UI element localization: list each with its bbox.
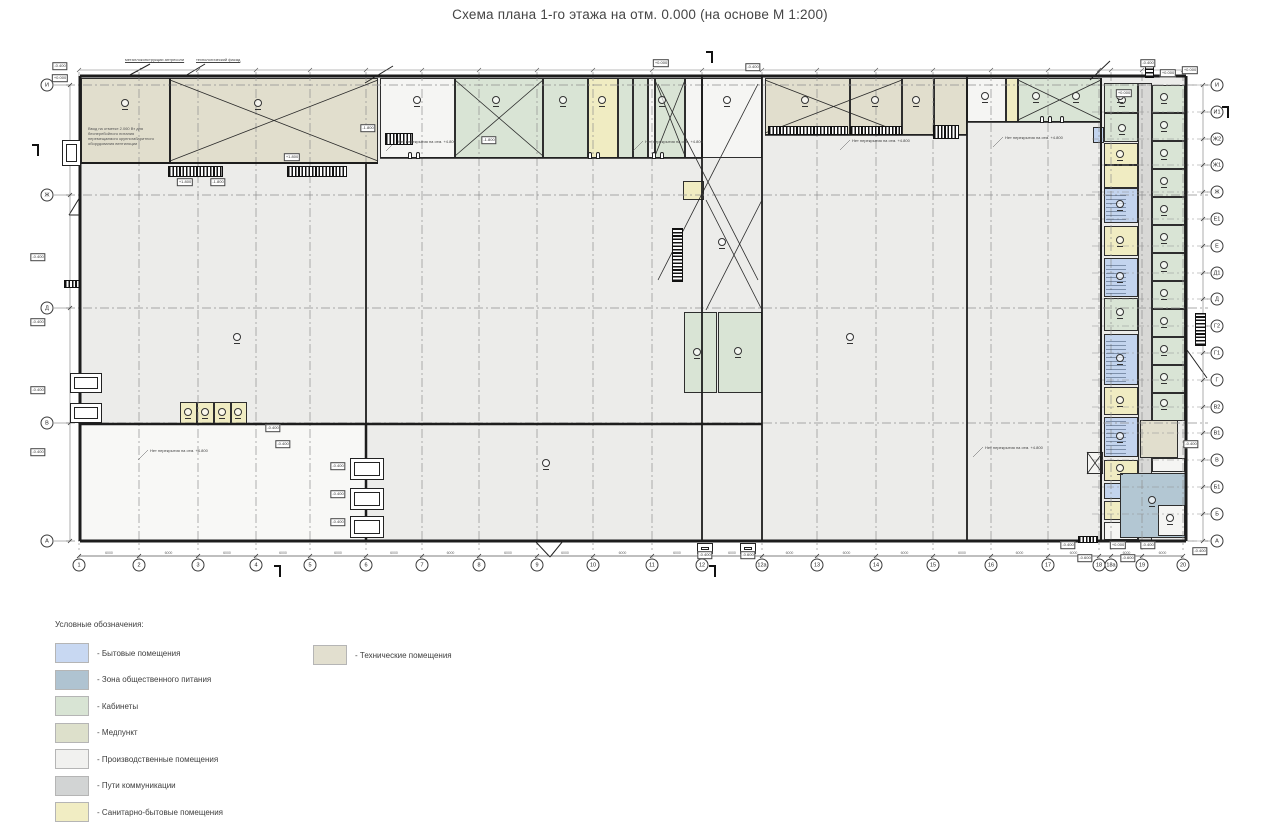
elevation-tag: -0.400 <box>1140 59 1155 67</box>
room-marker <box>1160 345 1168 353</box>
axis-marker: 5 <box>304 559 317 572</box>
section-mark <box>1222 106 1234 118</box>
door-swing <box>408 152 412 159</box>
axis-marker: Г <box>1211 374 1224 387</box>
axis-marker: Ж2 <box>1211 133 1224 146</box>
elevation-tag: +0.000 <box>1182 66 1198 74</box>
axis-marker: Д <box>41 302 54 315</box>
axis-marker: Г1 <box>1211 347 1224 360</box>
axis-marker: В <box>1211 454 1224 467</box>
legend-label: - Медпункт <box>97 728 138 737</box>
room-marker <box>801 96 809 104</box>
room-marker <box>912 96 920 104</box>
legend-swatch <box>313 645 347 665</box>
room-marker <box>871 96 879 104</box>
annotation-callout: Нет перекрытия на отм. +4.800 <box>852 138 910 143</box>
elevation-tag: -0.400 <box>1060 541 1075 549</box>
axis-marker: Е <box>1211 240 1224 253</box>
elevation-tag: +0.000 <box>1160 69 1176 77</box>
axis-marker: А <box>41 535 54 548</box>
hatch-block <box>168 166 223 177</box>
elevation-tag: -0.600 <box>1120 554 1135 562</box>
room-marker <box>542 459 550 467</box>
axis-marker: 17 <box>1042 559 1055 572</box>
room-marker <box>1072 92 1080 100</box>
axis-marker: 18а <box>1105 559 1118 572</box>
legend-label: - Пути коммуникации <box>97 781 176 790</box>
elevation-tag: -0.400 <box>1192 547 1207 555</box>
elevation-tag: -0.400 <box>265 424 280 432</box>
dock-door <box>70 373 102 393</box>
elevation-tag: -0.400 <box>52 62 67 70</box>
room-marker <box>254 99 262 107</box>
annotation-callout: Нет перекрытия на отм. +4.800 <box>645 139 703 144</box>
room-marker <box>218 408 226 416</box>
room-marker <box>1116 150 1124 158</box>
room-marker <box>1118 124 1126 132</box>
elevation-tag: -0.400 <box>330 518 345 526</box>
room-marker <box>1160 121 1168 129</box>
axis-marker: Д1 <box>1211 267 1224 280</box>
legend-item: - Производственные помещения <box>55 749 223 769</box>
legend-swatch <box>55 802 89 822</box>
axis-marker: 14 <box>870 559 883 572</box>
annotation-label: технологический фасад <box>196 57 240 62</box>
room-marker <box>718 238 726 246</box>
axis-marker: Ж1 <box>1211 159 1224 172</box>
legend-swatch <box>55 723 89 743</box>
elevation-tag: +1.800 <box>177 178 193 186</box>
legend-swatch <box>55 749 89 769</box>
room-marker <box>1116 396 1124 404</box>
legend-item: - Медпункт <box>55 723 223 743</box>
room-marker <box>1160 205 1168 213</box>
legend-item: - Технические помещения <box>313 645 452 665</box>
annotation-callout: Нет перекрытия на отм. +4.800 <box>1005 135 1063 140</box>
room-marker <box>598 96 606 104</box>
legend-label: - Санитарно-бытовые помещения <box>97 808 223 817</box>
legend-title: Условные обозначения: <box>55 620 223 629</box>
room-marker <box>1160 317 1168 325</box>
axis-marker: 12 <box>696 559 709 572</box>
axis-marker: 16 <box>985 559 998 572</box>
room-marker <box>658 96 666 104</box>
room-marker <box>1160 93 1168 101</box>
door-swing <box>416 152 420 159</box>
room-marker <box>1160 149 1168 157</box>
dock-door <box>350 488 384 510</box>
elevation-tag: -0.400 <box>30 386 45 394</box>
axis-marker: Е1 <box>1211 213 1224 226</box>
room-marker <box>1160 261 1168 269</box>
elevation-tag: -1.800 <box>360 124 375 132</box>
hatch-block <box>64 280 80 288</box>
elevation-tag: -0.400 <box>30 318 45 326</box>
dock-door <box>62 140 81 166</box>
section-mark-flag <box>706 51 713 53</box>
room-marker <box>846 333 854 341</box>
section-mark-flag <box>274 565 281 567</box>
room-marker <box>1116 354 1124 362</box>
axis-marker: 13 <box>811 559 824 572</box>
room-marker <box>492 96 500 104</box>
room-marker <box>734 347 742 355</box>
hatch-block <box>1106 340 1126 382</box>
axis-marker: 7 <box>416 559 429 572</box>
legend-item: - Пути коммуникации <box>55 776 223 796</box>
elevation-tag: +1.800 <box>284 153 300 161</box>
axis-marker: 1 <box>73 559 86 572</box>
elevation-tag: -0.600 <box>1077 554 1092 562</box>
door-swing <box>588 152 592 159</box>
elevation-tag: -0.400 <box>697 551 712 559</box>
room-marker <box>1032 92 1040 100</box>
axis-marker: Б1 <box>1211 481 1224 494</box>
legend: Условные обозначения: - Бытовые помещени… <box>55 620 223 829</box>
axis-marker: 2 <box>133 559 146 572</box>
elevation-tag: -0.400 <box>1183 440 1198 448</box>
room-marker <box>201 408 209 416</box>
elevation-tag: -0.400 <box>745 63 760 71</box>
room-marker <box>1160 289 1168 297</box>
elevation-tag: -0.400 <box>275 440 290 448</box>
axis-marker: В2 <box>1211 401 1224 414</box>
elevation-tag: +0.000 <box>653 59 669 67</box>
legend-item: - Бытовые помещения <box>55 643 223 663</box>
axis-marker: Д <box>1211 293 1224 306</box>
dock-door <box>350 516 384 538</box>
legend-swatch <box>55 643 89 663</box>
legend-column-1: - Бытовые помещения- Зона общественного … <box>55 643 223 822</box>
axis-marker: 20 <box>1177 559 1190 572</box>
axis-marker: 8 <box>473 559 486 572</box>
room-marker <box>233 333 241 341</box>
door-swing <box>660 152 664 159</box>
axis-marker: 4 <box>250 559 263 572</box>
door-swing <box>1048 116 1052 123</box>
elevation-tag: -1.800 <box>481 136 496 144</box>
elevation-tag: +0.000 <box>1110 541 1126 549</box>
room-marker <box>1160 233 1168 241</box>
legend-item: - Кабинеты <box>55 696 223 716</box>
axis-marker: А <box>1211 535 1224 548</box>
elevation-tag: +0.000 <box>52 74 68 82</box>
axis-marker: Г2 <box>1211 320 1224 333</box>
elevation-tag: +0.000 <box>1116 89 1132 97</box>
door-swing <box>1060 116 1064 123</box>
section-mark-flag <box>709 565 716 567</box>
room-marker <box>184 408 192 416</box>
room-marker <box>1160 373 1168 381</box>
axis-marker: 11 <box>646 559 659 572</box>
axis-marker: Ж <box>41 189 54 202</box>
axis-marker: 9 <box>531 559 544 572</box>
room-marker <box>1116 432 1124 440</box>
door-swing <box>1040 116 1044 123</box>
axis-marker: 12а <box>756 559 769 572</box>
legend-label: - Бытовые помещения <box>97 649 180 658</box>
hatch-block <box>1078 536 1098 543</box>
legend-label: - Зона общественного питания <box>97 675 211 684</box>
legend-label: - Кабинеты <box>97 702 138 711</box>
axis-marker: 15 <box>927 559 940 572</box>
door-swing <box>596 152 600 159</box>
axis-marker: 3 <box>192 559 205 572</box>
legend-item: - Зона общественного питания <box>55 670 223 690</box>
section-mark <box>706 51 718 63</box>
room-marker <box>1148 496 1156 504</box>
annotation-callout: Нет перекрытия на отм. +4.800 <box>398 139 456 144</box>
elevation-tag: -0.600 <box>740 551 755 559</box>
door-swing <box>652 152 656 159</box>
axis-marker: Ж <box>1211 186 1224 199</box>
room-marker <box>1116 308 1124 316</box>
legend-swatch <box>55 696 89 716</box>
section-mark-flag <box>1222 106 1229 108</box>
elevation-tag: -0.400 <box>330 462 345 470</box>
room-marker <box>981 92 989 100</box>
legend-item: - Санитарно-бытовые помещения <box>55 802 223 822</box>
room-marker <box>693 348 701 356</box>
section-mark <box>274 565 286 577</box>
hatch-block <box>768 126 848 135</box>
room-marker <box>1166 514 1174 522</box>
elevation-tag: -1.800 <box>210 178 225 186</box>
annotation-label: металлоконструкции антресоли <box>125 57 184 62</box>
floor-plan-sheet: Схема плана 1-го этажа на отм. 0.000 (на… <box>0 0 1280 839</box>
room-marker <box>1116 200 1124 208</box>
annotation-note: Ввод на отметке 2.060 Вт длябесперебойно… <box>88 126 172 146</box>
elevation-tag: -0.400 <box>1140 541 1155 549</box>
room-marker <box>1116 236 1124 244</box>
section-mark <box>32 144 44 156</box>
legend-swatch <box>55 776 89 796</box>
legend-swatch <box>55 670 89 690</box>
axis-marker: В <box>41 417 54 430</box>
hatch-block <box>287 166 347 177</box>
room-marker <box>1116 272 1124 280</box>
elevation-tag: -0.400 <box>30 448 45 456</box>
annotation-callout: Нет перекрытия на отм. +4.800 <box>150 448 208 453</box>
axis-marker: И <box>1211 79 1224 92</box>
legend-column-2: - Технические помещения <box>313 645 452 672</box>
room-marker <box>121 99 129 107</box>
annotation-callout: Нет перекрытия на отм. +4.800 <box>985 445 1043 450</box>
axis-marker: 19 <box>1136 559 1149 572</box>
legend-label: - Технические помещения <box>355 651 452 660</box>
room-marker <box>559 96 567 104</box>
elevation-tag: -0.400 <box>30 253 45 261</box>
section-mark-flag <box>32 144 39 146</box>
axis-marker: 10 <box>587 559 600 572</box>
dock-door <box>350 458 384 480</box>
axis-marker: 6 <box>360 559 373 572</box>
hatch-block <box>1195 313 1206 346</box>
hatch-block <box>672 228 683 282</box>
room-marker <box>723 96 731 104</box>
hatch-block <box>850 126 902 135</box>
section-mark <box>709 565 721 577</box>
axis-marker: Б <box>1211 508 1224 521</box>
room-marker <box>1160 177 1168 185</box>
room-marker <box>1116 464 1124 472</box>
hatch-block <box>933 125 959 139</box>
axis-marker: В1 <box>1211 427 1224 440</box>
legend-label: - Производственные помещения <box>97 755 218 764</box>
room-marker <box>1160 399 1168 407</box>
dock-door <box>70 403 102 423</box>
room-marker <box>234 408 242 416</box>
room-marker <box>413 96 421 104</box>
elevation-tag: -0.400 <box>330 490 345 498</box>
